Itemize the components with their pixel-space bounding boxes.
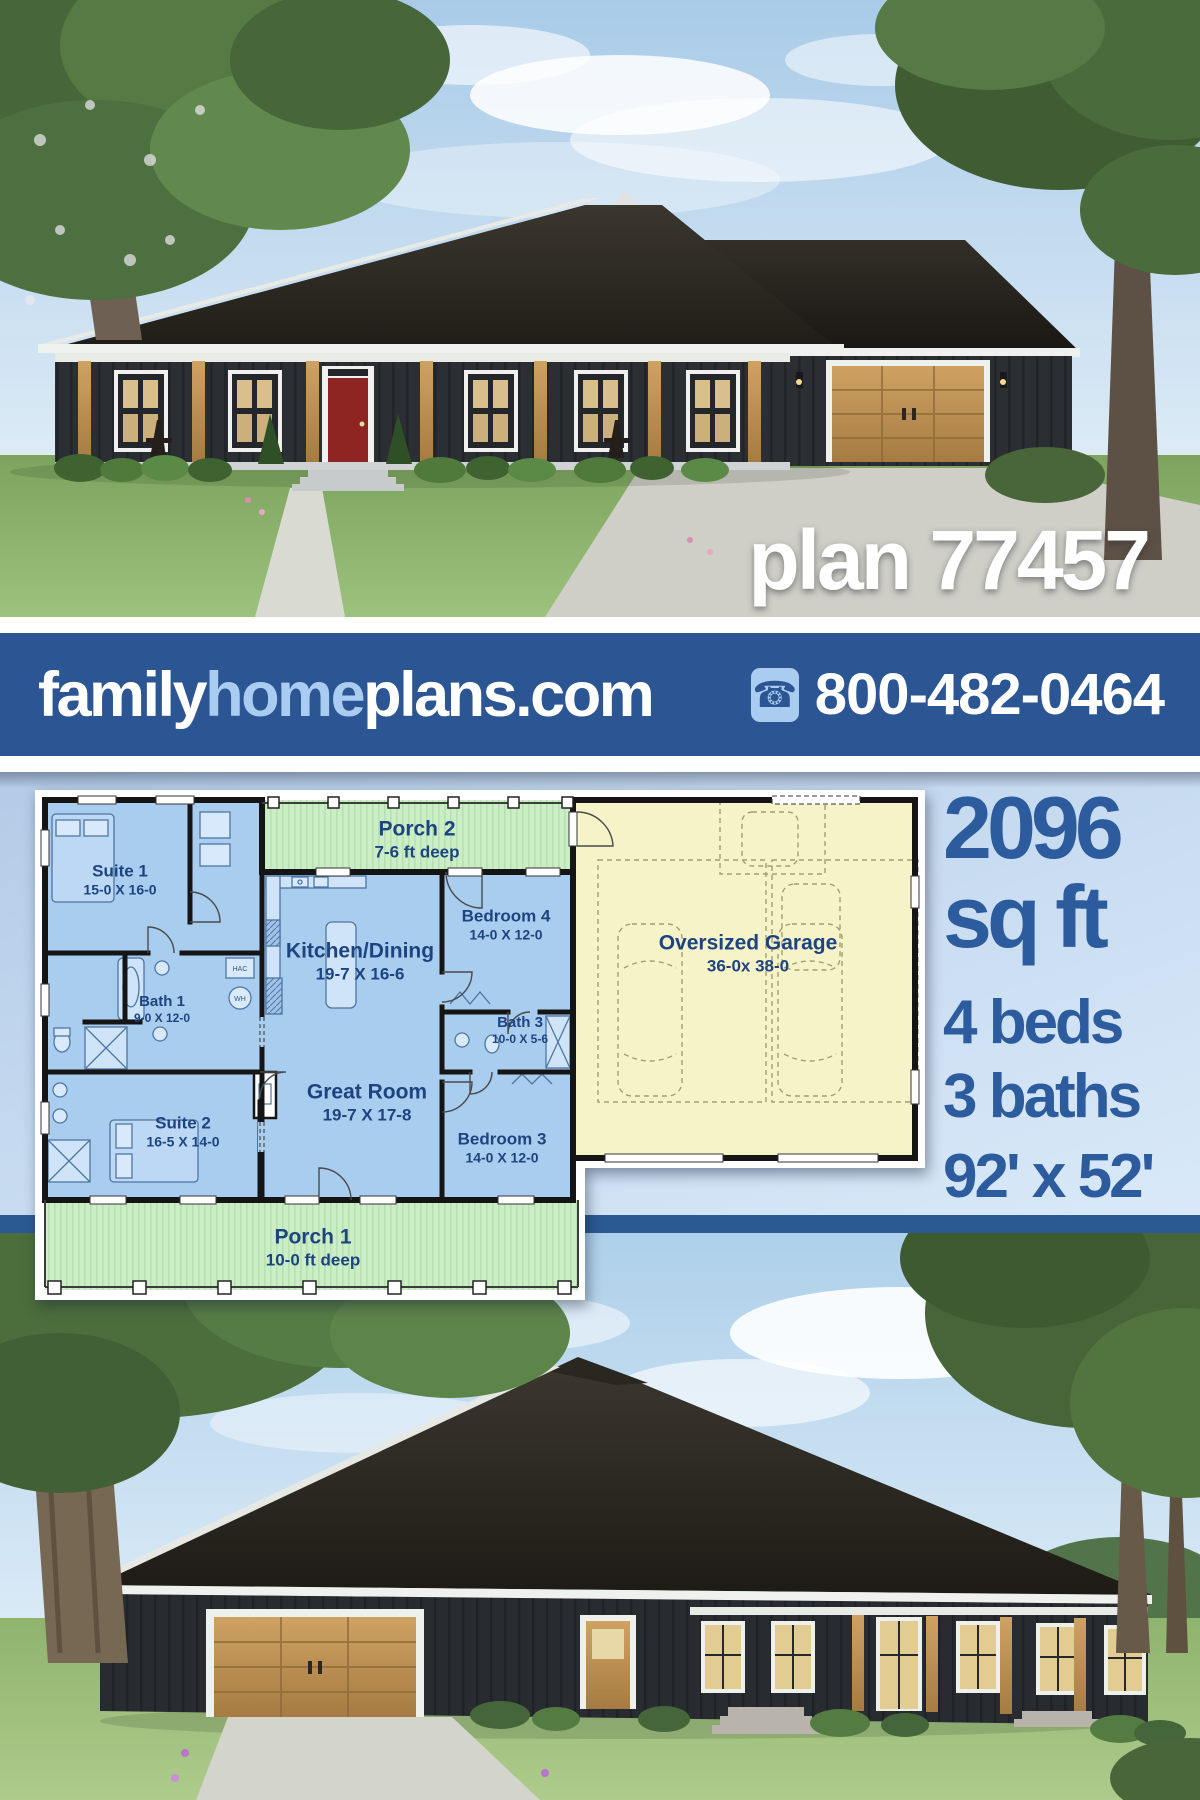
phone-group: ☎ 800-482-0464 <box>751 661 1164 728</box>
white-strip-top <box>0 617 1200 633</box>
front-door <box>322 366 374 462</box>
porch-header <box>690 1607 1148 1615</box>
room-label-porch1: Porch 110-0 ft deep <box>266 1226 360 1271</box>
plan-number-label: plan 77457 <box>748 512 1148 609</box>
svg-text:WH: WH <box>234 996 246 1003</box>
brand-banner: familyhomeplans.com ☎ 800-482-0464 <box>0 633 1200 756</box>
promo-page: plan 77457 familyhomeplans.com ☎ 800-482… <box>0 0 1200 1800</box>
room-label-bath3: Bath 310-0 X 5-6 <box>492 1014 548 1046</box>
fireplace <box>254 1072 276 1118</box>
hero-top-photo: plan 77457 <box>0 0 1200 617</box>
room-label-bedroom3: Bedroom 314-0 X 12-0 <box>458 1130 547 1167</box>
garage-door-right <box>826 360 990 462</box>
room-label-suite1: Suite 115-0 X 16-0 <box>83 862 156 899</box>
porch-steps <box>292 470 404 491</box>
white-strip-bottom <box>0 756 1200 772</box>
logo-family: family <box>38 660 205 730</box>
main-fascia <box>38 344 844 353</box>
svg-text:HAC: HAC <box>233 966 248 973</box>
logo-plans: plans.com <box>363 660 652 730</box>
site-logo: familyhomeplans.com <box>38 659 652 731</box>
bottom-scene-illustration <box>0 1233 1200 1800</box>
room-label-greatroom: Great Room19-7 X 17-8 <box>307 1081 427 1126</box>
floorplan-sheet: HAC WH <box>30 772 1020 1317</box>
garage-area <box>573 800 915 1158</box>
room-label-bath1: Bath 19-0 X 12-0 <box>133 993 191 1025</box>
room-label-garage: Oversized Garage36-0x 38-0 <box>659 932 838 977</box>
hero-bottom-photo <box>0 1233 1200 1800</box>
room-label-suite2: Suite 216-5 X 14-0 <box>146 1114 219 1151</box>
side-door <box>580 1615 636 1709</box>
porch-header <box>55 353 790 362</box>
room-label-porch2: Porch 27-6 ft deep <box>374 818 459 863</box>
room-label-bedroom4: Bedroom 414-0 X 12-0 <box>462 907 551 944</box>
phone-number: 800-482-0464 <box>815 661 1164 728</box>
phone-icon: ☎ <box>751 668 799 722</box>
logo-home: home <box>205 660 363 730</box>
room-label-kitchen: Kitchen/Dining19-7 X 16-6 <box>286 940 434 985</box>
garage-door <box>206 1609 424 1717</box>
